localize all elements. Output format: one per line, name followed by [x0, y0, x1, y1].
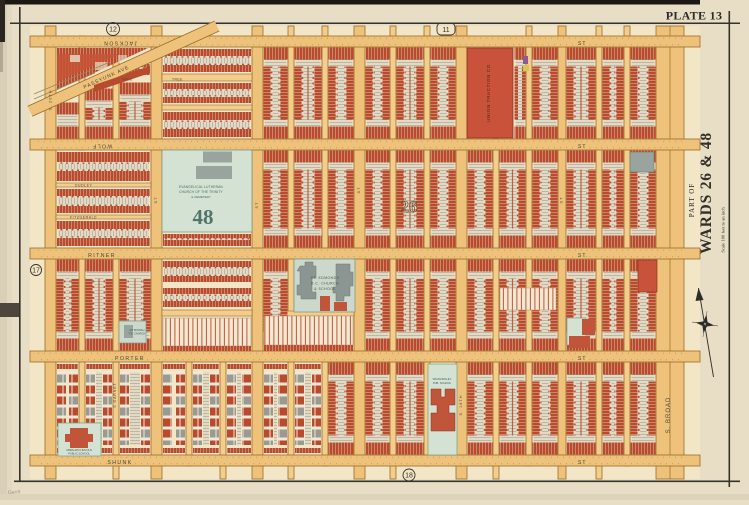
- svg-text:P.E. CHURCH: P.E. CHURCH: [129, 332, 146, 336]
- svg-text:RITNER: RITNER: [88, 253, 116, 259]
- svg-text:MT MORIAH: MT MORIAH: [130, 328, 145, 332]
- svg-text:PUBLIC SCHOOL: PUBLIC SCHOOL: [68, 452, 90, 456]
- svg-text:ST.: ST.: [578, 253, 588, 259]
- svg-text:PUB. SCHOOL: PUB. SCHOOL: [433, 381, 452, 385]
- svg-text:ST: ST: [578, 460, 586, 466]
- svg-text:WOLF: WOLF: [92, 142, 113, 148]
- svg-text:UNION TRACTION CO: UNION TRACTION CO: [486, 64, 491, 122]
- svg-text:ST: ST: [357, 187, 361, 194]
- svg-text:Gerrit: Gerrit: [8, 489, 21, 496]
- svg-text:ST. EDMONDS: ST. EDMONDS: [311, 276, 340, 280]
- svg-text:S. BROAD: S. BROAD: [666, 397, 672, 434]
- svg-text:TREE: TREE: [122, 78, 133, 82]
- svg-text:17: 17: [32, 268, 40, 275]
- svg-text:PORTER: PORTER: [115, 356, 145, 362]
- svg-text:CHURCH OF THE TRINITY: CHURCH OF THE TRINITY: [179, 190, 223, 194]
- svg-text:TREE: TREE: [172, 78, 183, 82]
- svg-text:SHUNK: SHUNK: [107, 460, 132, 466]
- svg-text:DUDLEY: DUDLEY: [75, 184, 92, 188]
- svg-text:& CEMETERY: & CEMETERY: [191, 195, 210, 199]
- svg-text:JACKSON: JACKSON: [103, 39, 137, 45]
- svg-text:EVANGELICAL LUTHERAN: EVANGELICAL LUTHERAN: [179, 185, 223, 189]
- svg-text:Scale 100 feet to an inch: Scale 100 feet to an inch: [721, 207, 726, 253]
- svg-text:12: 12: [109, 27, 117, 34]
- svg-text:WM McKINLEY: WM McKINLEY: [433, 377, 452, 381]
- svg-text:11: 11: [442, 27, 449, 34]
- svg-text:S. 16TH: S. 16TH: [459, 395, 463, 416]
- svg-text:ST: ST: [255, 202, 259, 209]
- svg-text:R.C. CHURCH: R.C. CHURCH: [311, 282, 339, 286]
- svg-text:ST: ST: [578, 144, 586, 150]
- svg-text:ST: ST: [578, 356, 586, 362]
- svg-text:PLATE 13: PLATE 13: [666, 9, 723, 23]
- svg-text:PART OF: PART OF: [688, 183, 696, 217]
- svg-text:48: 48: [193, 205, 214, 229]
- svg-text:FITZGERALD: FITZGERALD: [70, 216, 97, 220]
- svg-text:ST: ST: [560, 197, 564, 204]
- svg-text:S. 20TH: S. 20TH: [49, 90, 53, 111]
- svg-text:WARDS 26 & 48: WARDS 26 & 48: [698, 132, 715, 254]
- svg-text:ST: ST: [154, 197, 158, 204]
- svg-text:S GARNET: S GARNET: [113, 382, 117, 407]
- svg-text:& SCHOOL: & SCHOOL: [314, 287, 336, 291]
- svg-text:ST: ST: [578, 41, 586, 47]
- svg-text:18: 18: [405, 473, 413, 480]
- svg-text:26: 26: [401, 197, 418, 216]
- svg-text:ABRAHAM LINCOLN: ABRAHAM LINCOLN: [66, 448, 92, 452]
